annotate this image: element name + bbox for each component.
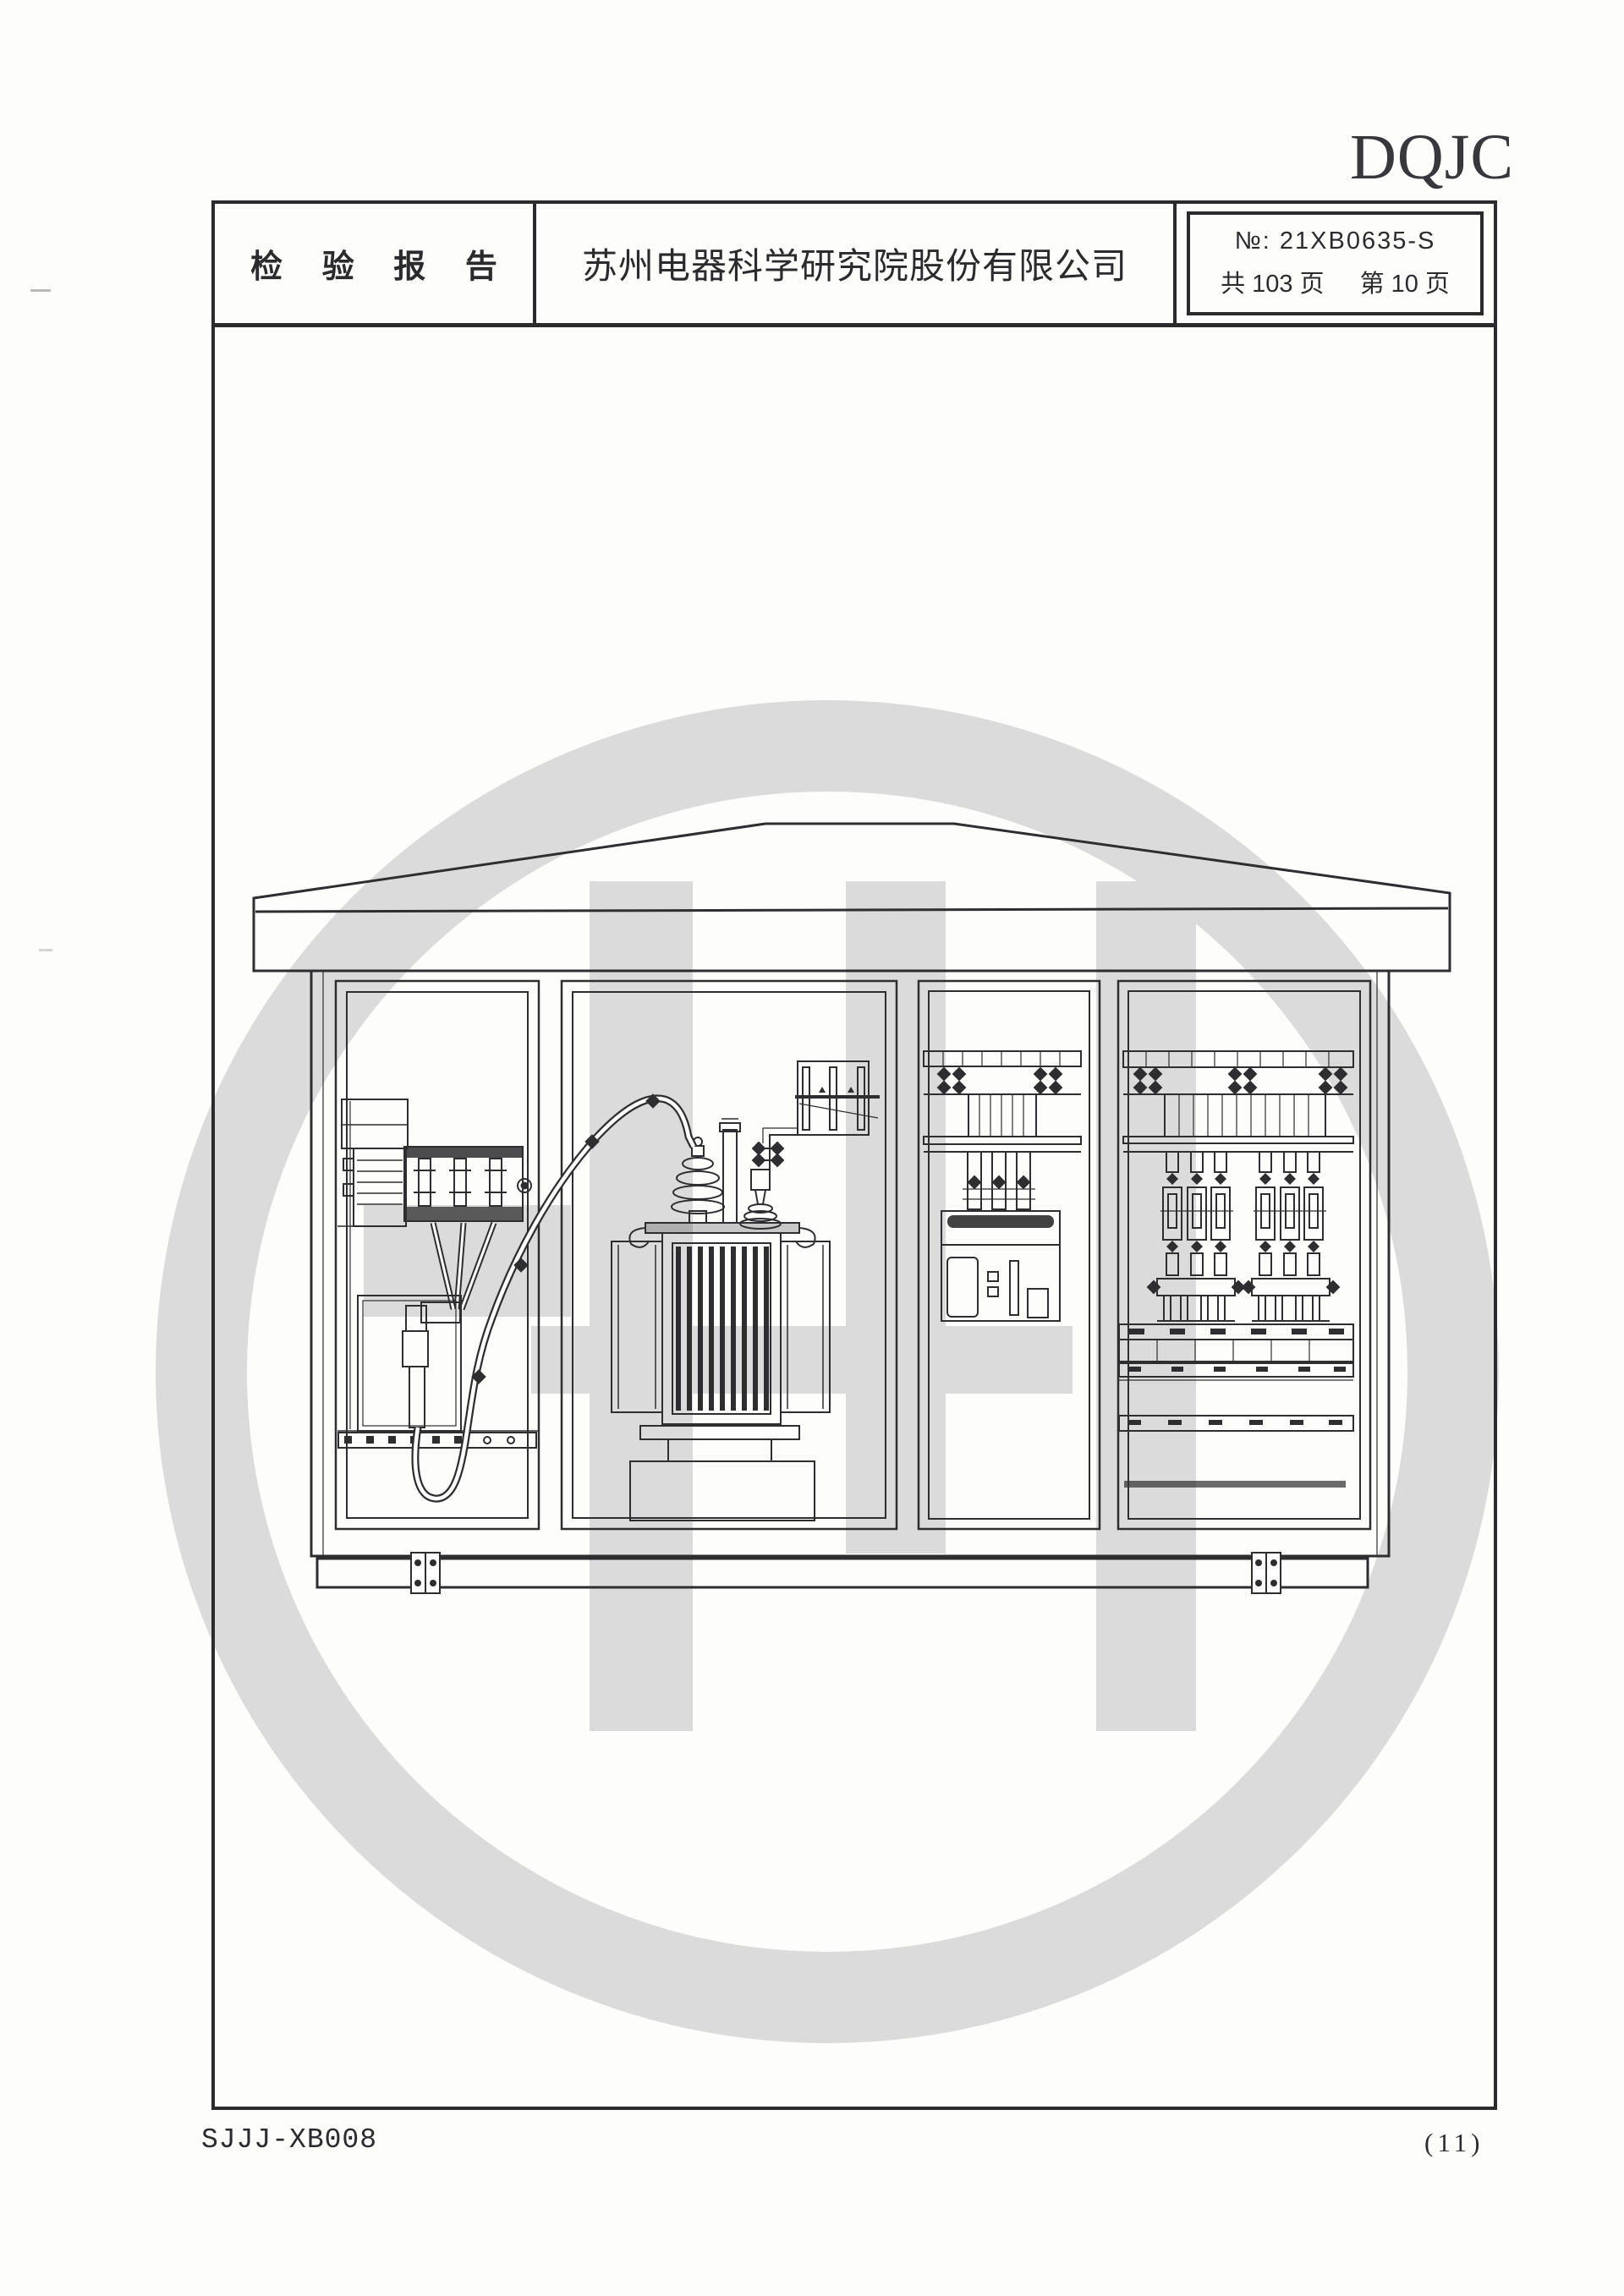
report-number-cell: №: 21XB0635-S 共 103 页 第 10 页 bbox=[1177, 204, 1494, 323]
report-number-line: №: 21XB0635-S bbox=[1235, 227, 1436, 255]
page-border: 检 验 报 告 苏州电器科学研究院股份有限公司 №: 21XB0635-S 共 … bbox=[211, 200, 1497, 2110]
header-table: 检 验 报 告 苏州电器科学研究院股份有限公司 №: 21XB0635-S 共 … bbox=[215, 204, 1494, 327]
company-name: 苏州电器科学研究院股份有限公司 bbox=[582, 238, 1127, 289]
scan-artifact bbox=[39, 949, 52, 951]
report-number-value: 21XB0635-S bbox=[1280, 227, 1435, 255]
company-cell: 苏州电器科学研究院股份有限公司 bbox=[536, 204, 1177, 323]
report-title: 检 验 报 告 bbox=[235, 240, 513, 287]
report-title-cell: 检 验 报 告 bbox=[215, 204, 536, 323]
total-pages: 共 103 页 bbox=[1221, 264, 1325, 299]
scan-artifact bbox=[30, 289, 51, 292]
pages-line: 共 103 页 第 10 页 bbox=[1221, 264, 1450, 299]
footer-page-number: (11) bbox=[1424, 2128, 1484, 2158]
footer-doc-code: SJJJ-XB008 bbox=[201, 2124, 377, 2156]
report-number-label: №: bbox=[1235, 227, 1271, 255]
dqjc-logo: DQJC bbox=[1350, 125, 1528, 189]
current-page: 第 10 页 bbox=[1360, 264, 1450, 299]
report-page: DQJC 检 验 报 告 苏州电器科学研究院股份有限公司 №: 21XB0635… bbox=[0, 0, 1624, 2296]
report-number-box: №: 21XB0635-S 共 103 页 第 10 页 bbox=[1187, 211, 1484, 315]
